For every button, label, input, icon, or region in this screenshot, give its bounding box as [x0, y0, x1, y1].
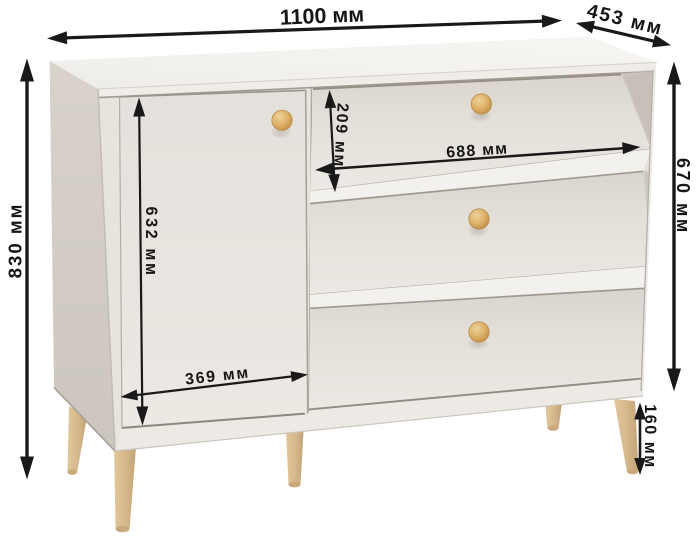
svg-text:209 мм: 209 мм: [330, 103, 350, 169]
svg-text:632 мм: 632 мм: [142, 206, 160, 277]
svg-text:670 мм: 670 мм: [673, 158, 693, 235]
svg-text:830 мм: 830 мм: [5, 203, 26, 279]
svg-text:1100 мм: 1100 мм: [279, 2, 364, 29]
svg-text:160 мм: 160 мм: [641, 404, 659, 468]
